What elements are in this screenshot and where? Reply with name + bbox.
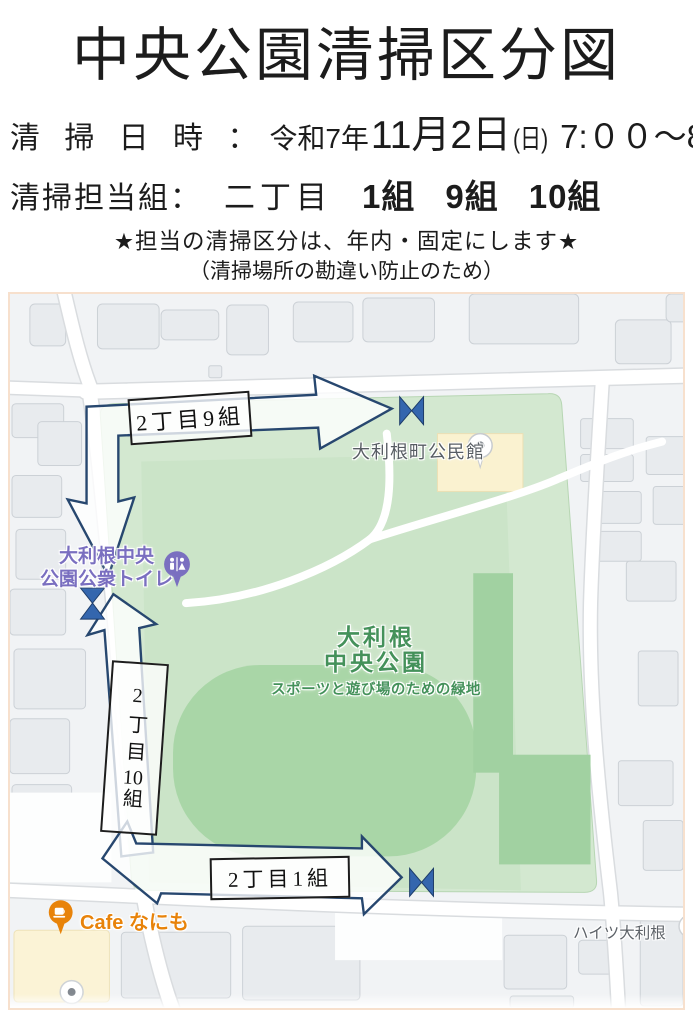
tree-patch — [499, 755, 590, 865]
zone-label-2-10: 2丁目10組 — [100, 660, 169, 836]
zone-label-2-9: 2丁目9組 — [128, 391, 253, 445]
poi-toilet-line2: 公園公衆トイレ — [34, 568, 179, 591]
poi-park-label: 大利根 中央公園 スポーツと遊び場のための緑地 — [270, 625, 482, 699]
zone10-number: 10 — [120, 767, 144, 789]
zone10-chars: 2丁目 — [119, 684, 154, 769]
zone10-kumi: 組 — [115, 787, 146, 816]
page: { "header": { "title": "中央公園清掃区分図", "dat… — [0, 0, 693, 1024]
datetime-label: 清 掃 日 時 ： — [10, 113, 265, 157]
datetime-weekday: (日) — [513, 117, 548, 156]
duty-label: 清掃担当組： — [10, 173, 202, 217]
duty-area: 二丁目 — [224, 172, 332, 217]
poi-toilet-label: 大利根中央 公園公衆トイレ — [34, 545, 179, 591]
poi-heights-label: ハイツ大利根 — [573, 921, 666, 943]
duty-group-10: 10組 — [529, 170, 602, 218]
park-map-image: 大利根町公民館 大利根中央 公園公衆トイレ 大利根 中央公園 スポーツと遊び場の… — [8, 292, 685, 1010]
duty-group-1: 1組 — [362, 170, 415, 218]
park-name-line2: 中央公園 — [270, 650, 482, 675]
duty-groups-line: 清掃担当組： 二丁目 1組 9組 10組 — [10, 170, 601, 218]
datetime-time: 7:００～8:00 — [560, 110, 693, 158]
park-subtitle: スポーツと遊び場のための緑地 — [270, 678, 482, 699]
duty-group-9: 9組 — [445, 170, 498, 218]
note-fixed-assignment: ★担当の清掃区分は、年内・固定にします★ — [0, 224, 693, 256]
zone-label-2-1: 2丁目1組 — [210, 856, 351, 900]
note-reason: （清掃場所の勘違い防止のため） — [0, 255, 693, 285]
page-title: 中央公園清掃区分図 — [0, 8, 693, 92]
datetime-era: 令和7年 — [269, 117, 369, 157]
poi-cafe-label: Cafe なにも — [80, 906, 189, 935]
cleaning-datetime-line: 清 掃 日 時 ： 令和7年 11月2日 (日) 7:００～8:00 — [10, 104, 693, 160]
poi-community-hall-label: 大利根町公民館 — [352, 438, 485, 464]
unlabeled-pin — [60, 981, 83, 1004]
datetime-date: 11月2日 — [371, 104, 511, 160]
poi-toilet-line1: 大利根中央 — [34, 545, 179, 568]
park-name-line1: 大利根 — [270, 625, 482, 650]
